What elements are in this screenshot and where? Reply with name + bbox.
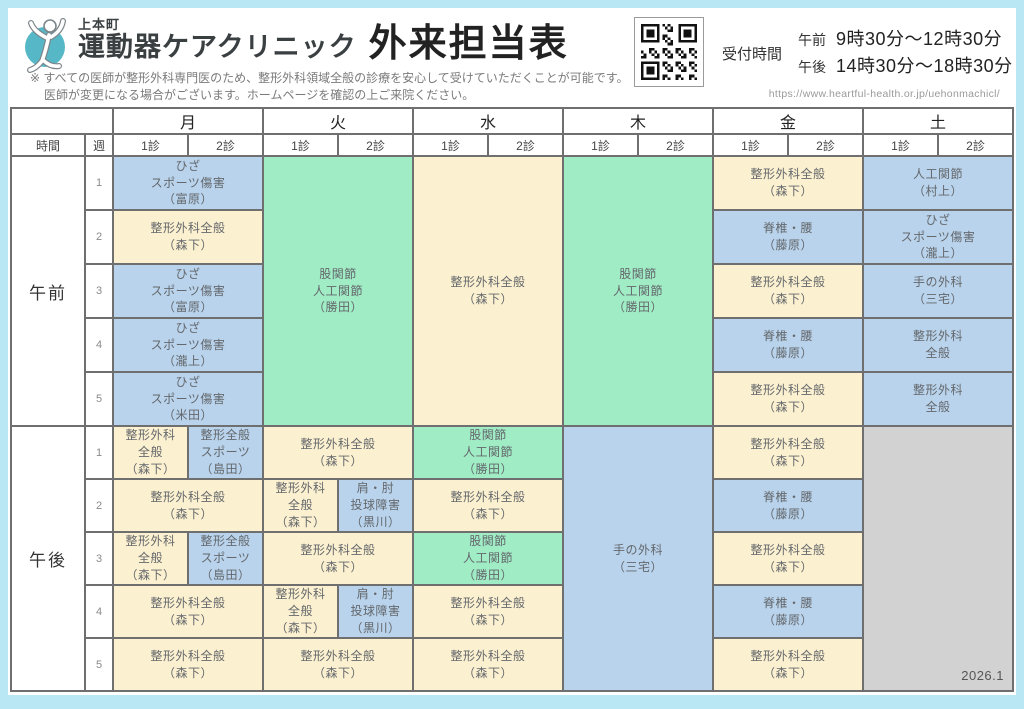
cell-wed: 整形外科全般 （森下）: [413, 585, 563, 638]
qr-code-image: [641, 24, 697, 80]
cell-fri: 整形外科全般 （森下）: [713, 638, 863, 691]
table-row: 午前1ひざ スポーツ傷害 （富原）股関節 人工関節 （勝田）整形外科全般 （森下…: [11, 156, 1013, 210]
cell-mon-1: 整形外科 全般 （森下）: [113, 532, 188, 585]
notice-text: ※ すべての医師が整形外科専門医のため、整形外科領域全般の診療を安心して受けてい…: [30, 70, 629, 105]
cell-fri: 脊椎・腰 （藤原）: [713, 479, 863, 532]
session-label-am: 午前: [11, 156, 85, 426]
cell-wed: 整形外科全般 （森下）: [413, 479, 563, 532]
clinic-room-header-5-1: 1診: [713, 134, 788, 156]
cell-sat: 整形外科 全般: [863, 318, 1013, 372]
website-url: https://www.heartful-health.or.jp/uehonm…: [769, 88, 1000, 100]
cell-fri: 整形外科全般 （森下）: [713, 532, 863, 585]
reception-hours: 受付時間 午前 9時30分～12時30分 午後 14時30分～18時30分: [722, 26, 1013, 80]
week-number: 4: [85, 318, 113, 372]
session-label-pm: 午後: [11, 426, 85, 691]
cell-mon: 整形外科全般 （森下）: [113, 479, 263, 532]
schedule-table: 月火水木金土時間週1診2診1診2診1診2診1診2診1診2診1診2診 午前1ひざ …: [10, 107, 1014, 692]
cell-fri: 脊椎・腰 （藤原）: [713, 210, 863, 264]
table-row: 午後1整形外科 全般 （森下）整形全般 スポーツ （島田）整形外科全般 （森下）…: [11, 426, 1013, 479]
week-number: 5: [85, 372, 113, 426]
clinic-room-header-4-2: 2診: [638, 134, 713, 156]
day-header-2: 火: [263, 108, 413, 134]
cell-fri: 脊椎・腰 （藤原）: [713, 585, 863, 638]
clinic-room-header-1-2: 2診: [188, 134, 263, 156]
cell-mon: 整形外科全般 （森下）: [113, 638, 263, 691]
table-header-row: 月火水木金土: [11, 108, 1013, 134]
cell-fri: 整形外科全般 （森下）: [713, 426, 863, 479]
clinic-room-header-5-2: 2診: [788, 134, 863, 156]
table-subheader-row: 時間週1診2診1診2診1診2診1診2診1診2診1診2診: [11, 134, 1013, 156]
cell-mon-1: 整形外科 全般 （森下）: [113, 426, 188, 479]
day-header-1: 月: [113, 108, 263, 134]
cell-wed: 股関節 人工関節 （勝田）: [413, 532, 563, 585]
cell-sat: ひざ スポーツ傷害 （瀧上）: [863, 210, 1013, 264]
cell-wed: 股関節 人工関節 （勝田）: [413, 426, 563, 479]
clinic-name-block: 上本町 運動器ケアクリニック: [78, 14, 357, 63]
day-header-6: 土: [863, 108, 1013, 134]
clinic-name: 運動器ケアクリニック: [78, 33, 357, 63]
edition-label: 2026.1: [961, 667, 1004, 685]
cell-fri: 脊椎・腰 （藤原）: [713, 318, 863, 372]
cell-mon: ひざ スポーツ傷害 （富原）: [113, 264, 263, 318]
clinic-room-header-2-2: 2診: [338, 134, 413, 156]
cell-tue-1: 整形外科 全般 （森下）: [263, 479, 338, 532]
clinic-room-header-6-1: 1診: [863, 134, 938, 156]
cell-sat: 整形外科 全般: [863, 372, 1013, 426]
clinic-area-label: 上本町: [78, 14, 357, 33]
reception-am-label: 午前: [798, 30, 836, 51]
reception-pm-label: 午後: [798, 57, 836, 78]
cell-sat: 手の外科 （三宅）: [863, 264, 1013, 318]
clinic-room-header-6-2: 2診: [938, 134, 1013, 156]
poster-content: 上本町 運動器ケアクリニック 外来担当表 ※ すべての医師が整形外科専門医のため…: [8, 8, 1016, 695]
cell-sat: 人工関節 （村上）: [863, 156, 1013, 210]
reception-times: 午前 9時30分～12時30分 午後 14時30分～18時30分: [798, 26, 1013, 80]
cell-tue-2: 肩・肘 投球障害 （黒川）: [338, 479, 413, 532]
cell-wed: 整形外科全般 （森下）: [413, 638, 563, 691]
table-corner: [11, 108, 113, 134]
cell-tue: 整形外科全般 （森下）: [263, 638, 413, 691]
clinic-logo-icon: [20, 14, 72, 74]
day-header-5: 金: [713, 108, 863, 134]
cell-tue: 股関節 人工関節 （勝田）: [263, 156, 413, 426]
cell-sat: 2026.1: [863, 426, 1013, 691]
notice-line1: ※ すべての医師が整形外科専門医のため、整形外科領域全般の診療を安心して受けてい…: [30, 70, 629, 87]
reception-label: 受付時間: [722, 43, 782, 64]
reception-am-time: 9時30分～12時30分: [836, 26, 1002, 53]
clinic-brand: 上本町 運動器ケアクリニック 外来担当表: [20, 10, 569, 74]
week-number: 3: [85, 532, 113, 585]
clinic-room-header-2-1: 1診: [263, 134, 338, 156]
day-header-4: 木: [563, 108, 713, 134]
cell-thu: 手の外科 （三宅）: [563, 426, 713, 691]
cell-mon: 整形外科全般 （森下）: [113, 210, 263, 264]
cell-mon: ひざ スポーツ傷害 （米田）: [113, 372, 263, 426]
notice-line2: 医師が変更になる場合がございます。ホームページを確認の上ご来院ください。: [30, 87, 629, 104]
week-column-header: 週: [85, 134, 113, 156]
week-number: 4: [85, 585, 113, 638]
week-number: 5: [85, 638, 113, 691]
qr-code: [634, 17, 704, 87]
day-header-3: 水: [413, 108, 563, 134]
cell-tue-1: 整形外科 全般 （森下）: [263, 585, 338, 638]
week-number: 1: [85, 426, 113, 479]
cell-tue: 整形外科全般 （森下）: [263, 426, 413, 479]
cell-fri: 整形外科全般 （森下）: [713, 372, 863, 426]
cell-mon-2: 整形全般 スポーツ （島田）: [188, 532, 263, 585]
cell-fri: 整形外科全般 （森下）: [713, 264, 863, 318]
cell-fri: 整形外科全般 （森下）: [713, 156, 863, 210]
cell-thu: 股関節 人工関節 （勝田）: [563, 156, 713, 426]
reception-pm-time: 14時30分～18時30分: [836, 53, 1013, 80]
cell-tue: 整形外科全般 （森下）: [263, 532, 413, 585]
clinic-room-header-3-1: 1診: [413, 134, 488, 156]
week-number: 2: [85, 210, 113, 264]
week-number: 3: [85, 264, 113, 318]
cell-mon: ひざ スポーツ傷害 （富原）: [113, 156, 263, 210]
page-title: 外来担当表: [369, 25, 569, 63]
cell-mon: 整形外科全般 （森下）: [113, 585, 263, 638]
clinic-room-header-3-2: 2診: [488, 134, 563, 156]
cell-tue-2: 肩・肘 投球障害 （黒川）: [338, 585, 413, 638]
week-number: 1: [85, 156, 113, 210]
cell-wed: 整形外科全般 （森下）: [413, 156, 563, 426]
time-column-header: 時間: [11, 134, 85, 156]
clinic-room-header-4-1: 1診: [563, 134, 638, 156]
week-number: 2: [85, 479, 113, 532]
clinic-room-header-1-1: 1診: [113, 134, 188, 156]
cell-mon: ひざ スポーツ傷害 （瀧上）: [113, 318, 263, 372]
cell-mon-2: 整形全般 スポーツ （島田）: [188, 426, 263, 479]
